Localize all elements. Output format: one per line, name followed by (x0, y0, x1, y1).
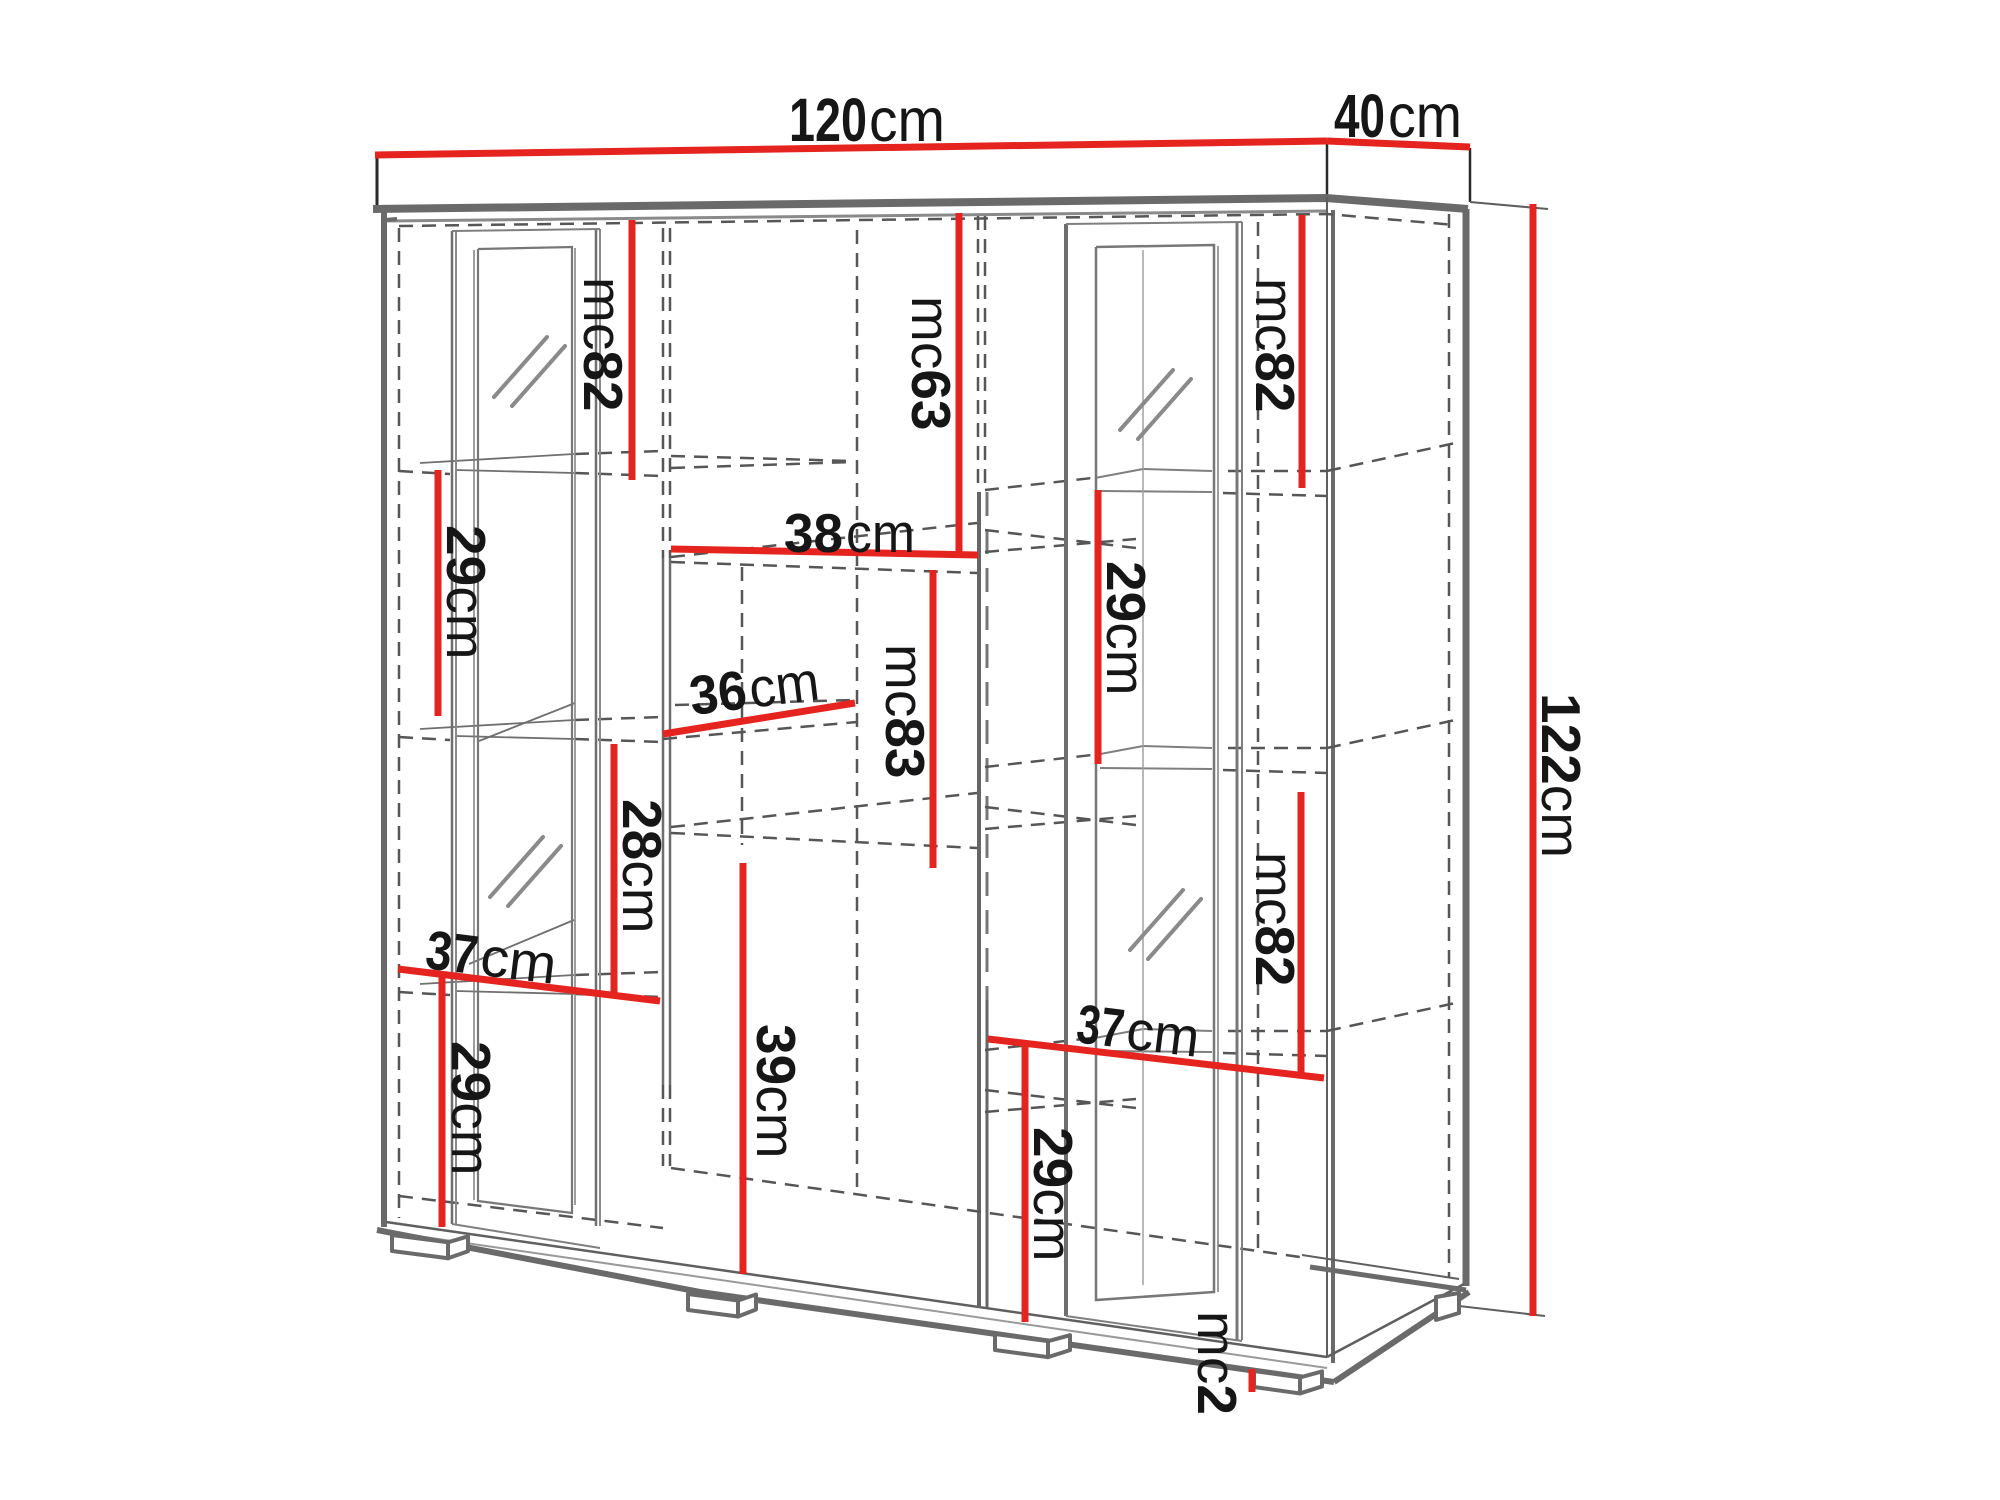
svg-text:mc2: mc2 (1186, 1311, 1248, 1415)
svg-text:37: 37 (1074, 992, 1128, 1059)
svg-text:cm: cm (846, 502, 915, 564)
svg-text:mc82: mc82 (1244, 852, 1306, 987)
svg-text:36: 36 (686, 658, 750, 726)
svg-text:mc63: mc63 (900, 296, 962, 431)
svg-text:38: 38 (784, 502, 843, 564)
svg-text:cm: cm (745, 650, 822, 720)
svg-text:37: 37 (423, 918, 482, 986)
svg-text:cm: cm (477, 925, 560, 996)
svg-text:39cm: 39cm (745, 1024, 807, 1159)
svg-text:cm: cm (1123, 998, 1203, 1068)
svg-text:mc82: mc82 (1244, 278, 1306, 413)
svg-text:29cm: 29cm (435, 525, 497, 660)
svg-text:40: 40 (1334, 82, 1385, 150)
svg-text:cm: cm (869, 86, 945, 154)
svg-text:28cm: 28cm (611, 799, 673, 934)
svg-text:29cm: 29cm (1022, 1127, 1084, 1262)
svg-text:mc82: mc82 (572, 277, 634, 412)
svg-text:122cm: 122cm (1530, 693, 1592, 858)
svg-text:29cm: 29cm (440, 1041, 502, 1176)
svg-text:29cm: 29cm (1095, 561, 1157, 696)
svg-text:120: 120 (789, 86, 867, 154)
svg-text:cm: cm (1388, 82, 1462, 150)
svg-text:mc83: mc83 (874, 644, 936, 779)
